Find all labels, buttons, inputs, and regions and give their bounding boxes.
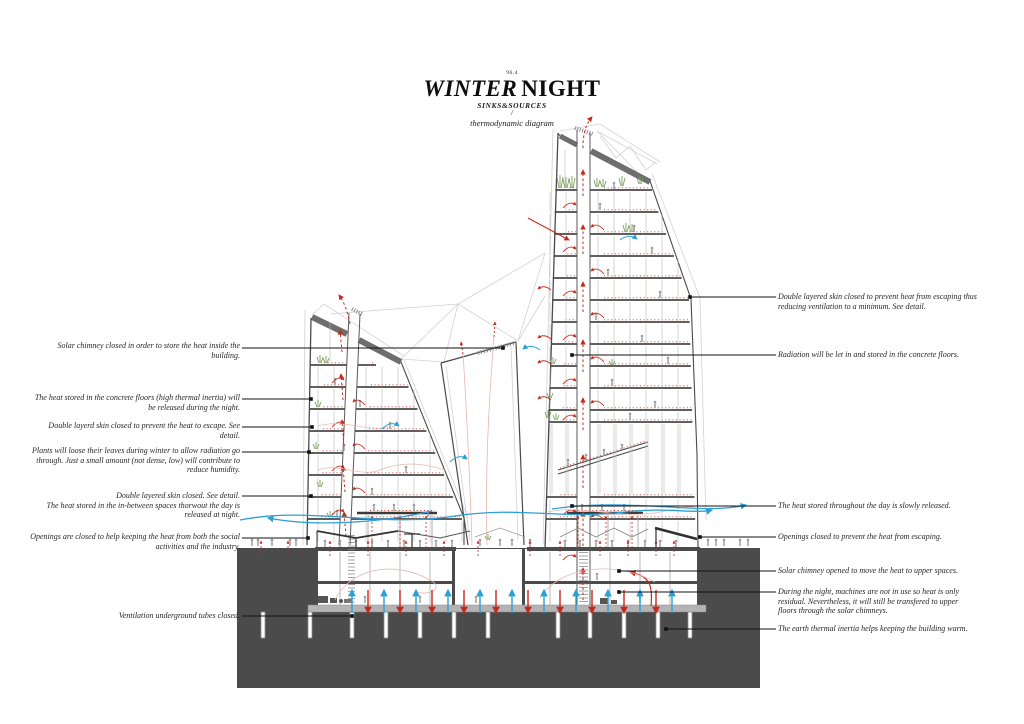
annotation-machines-residual-heat: During the night, machines are not in us… (778, 587, 978, 616)
title-block: 96.4 WINTERNIGHT SINKS&SOURCES / thermod… (0, 70, 1024, 128)
human-figures (251, 182, 750, 603)
annotation-openings-closed-right: Openings closed to prevent the heat from… (778, 532, 978, 542)
title-divider: / (0, 110, 1024, 117)
title-caption: thermodynamic diagram (0, 118, 1024, 128)
annotation-radiation-stored: Radiation will be let in and stored in t… (778, 350, 978, 360)
annotation-underground-tubes: Ventilation underground tubes closed. (28, 611, 240, 621)
annotation-solar-chimney-closed: Solar chimney closed in order to store t… (28, 341, 240, 360)
annotation-double-skin-prevent-escape: Double layerd skin closed to prevent the… (28, 421, 240, 440)
page-title: WINTERNIGHT (0, 76, 1024, 101)
annotation-concrete-floors-release: The heat stored in the concrete floors (… (28, 393, 240, 412)
annotation-heat-slowly-released: The heat stored throughout the day is sl… (778, 501, 978, 511)
annotation-inbetween-spaces: Double layered skin closed. See detail. … (28, 491, 240, 520)
annotation-double-skin-right: Double layered skin closed to prevent he… (778, 292, 978, 311)
ground-level-canopies (317, 528, 697, 548)
annotation-openings-closed-left: Openings are closed to help keeping the … (28, 532, 240, 551)
annotation-plants-winter: Plants will loose their leaves during wi… (28, 446, 240, 475)
annotation-earth-thermal-inertia: The earth thermal inertia helps keeping … (778, 624, 978, 634)
double-skin-ghost-lines (303, 124, 706, 545)
winter-night-diagram-page: 96.4 WINTERNIGHT SINKS&SOURCES / thermod… (0, 0, 1024, 724)
annotation-solar-chimney-opened: Solar chimney opened to move the heat to… (778, 566, 978, 576)
